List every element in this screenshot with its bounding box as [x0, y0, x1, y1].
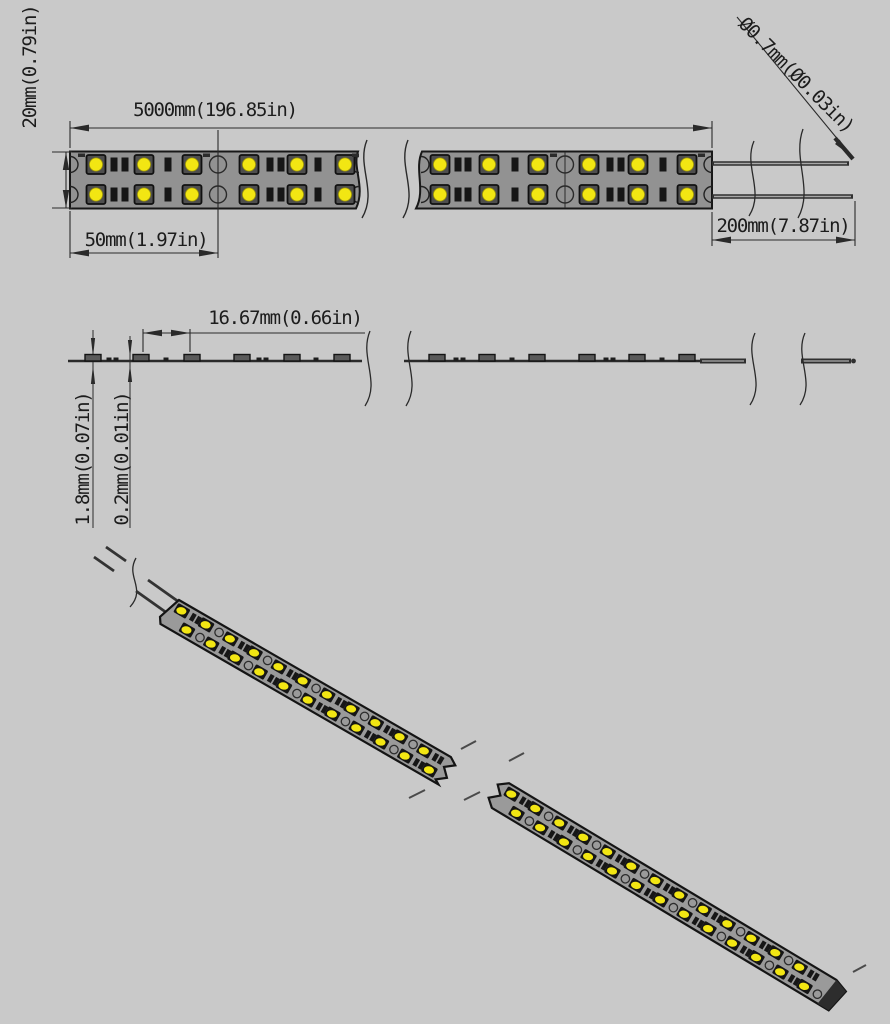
resistor [267, 158, 274, 172]
resistor [165, 188, 172, 202]
dim-strip-length-label: 5000mm(196.85in) [105, 99, 325, 121]
cut-tick [464, 792, 480, 800]
resistor [618, 188, 625, 202]
break-line [362, 140, 368, 218]
arrowhead [63, 152, 69, 170]
side-resistor-bump [314, 358, 319, 362]
cut-tick [461, 741, 476, 749]
arrowhead [91, 365, 95, 384]
resistor [607, 158, 614, 172]
led-chip [433, 188, 446, 201]
resistor [111, 188, 118, 202]
side-resistor-bump [257, 358, 262, 362]
led-chip [290, 188, 303, 201]
led-chip [137, 188, 150, 201]
side-resistor-bump [611, 358, 616, 362]
side-led-bump [479, 355, 495, 362]
resistor [660, 188, 667, 202]
arrowhead [143, 330, 162, 336]
led-chip [582, 188, 595, 201]
led-chip [242, 158, 255, 171]
led-chip [290, 158, 303, 171]
side-resistor-bump [454, 358, 459, 362]
break-line [749, 141, 755, 216]
side-led-bump [629, 355, 645, 362]
break-line [403, 140, 409, 218]
side-resistor-bump [510, 358, 515, 362]
iso-strip-segment-2 [485, 778, 848, 1013]
resistor [465, 158, 472, 172]
led-chip [137, 158, 150, 171]
side-led-bump [334, 355, 350, 362]
led-chip [338, 188, 351, 201]
side-led-bump [679, 355, 695, 362]
arrowhead [836, 237, 855, 244]
side-resistor-bump [114, 358, 119, 362]
side-resistor-bump [604, 358, 609, 362]
resistor [278, 188, 285, 202]
led-chip [482, 188, 495, 201]
side-resistor-bump [461, 358, 466, 362]
dim-led-pitch-label: 16.67mm(0.66in) [197, 307, 373, 329]
dim-cut-segment-label: 50mm(1.97in) [66, 229, 226, 251]
resistor [278, 158, 285, 172]
resistor [267, 188, 274, 202]
technical-drawing [0, 0, 890, 1024]
dim-total-thickness-label: 1.8mm(0.07in) [72, 384, 94, 534]
arrowhead [128, 340, 132, 358]
led-chip [89, 158, 102, 171]
resistor [122, 158, 129, 172]
side-resistor-bump [264, 358, 269, 362]
side-resistor-bump [660, 358, 665, 362]
break-line [365, 331, 371, 406]
resistor [512, 188, 519, 202]
resistor [315, 158, 322, 172]
cut-tick [509, 753, 524, 761]
arrowhead [693, 125, 712, 132]
break-line [130, 558, 137, 607]
side-resistor-bump [107, 358, 112, 362]
side-led-bump [284, 355, 300, 362]
drawing-canvas: 20mm(0.79in) 5000mm(196.85in) 50mm(1.97i… [0, 0, 890, 1024]
iso-wire-stub [94, 557, 114, 571]
led-chip [242, 188, 255, 201]
led-chip [531, 188, 544, 201]
dim-wire-length-label: 200mm(7.87in) [700, 215, 866, 237]
resistor [660, 158, 667, 172]
top-view-strip-right [416, 152, 712, 209]
led-chip [338, 158, 351, 171]
led-chip [185, 158, 198, 171]
dim-strip-width-label: 20mm(0.79in) [19, 2, 41, 132]
wire-tip [851, 359, 856, 364]
dim-pcb-thickness-label: 0.2mm(0.01in) [111, 384, 133, 534]
arrowhead [128, 365, 132, 383]
side-led-bump [184, 355, 200, 362]
led-chip [680, 158, 693, 171]
iso-wire [136, 591, 167, 613]
side-led-bump [529, 355, 545, 362]
side-led-bump [133, 355, 149, 362]
polarity-mark [78, 154, 85, 158]
resistor [165, 158, 172, 172]
iso-wire [148, 580, 179, 602]
cut-tick [853, 965, 866, 972]
resistor [122, 188, 129, 202]
side-led-bump [579, 355, 595, 362]
led-chip [482, 158, 495, 171]
led-chip [680, 188, 693, 201]
break-line [798, 129, 804, 218]
polarity-mark [550, 154, 557, 158]
iso-wire-stub [106, 547, 126, 561]
resistor [465, 188, 472, 202]
side-led-bump [85, 355, 101, 362]
iso-strip-segment-1 [157, 596, 458, 787]
resistor [455, 158, 462, 172]
break-line [750, 333, 756, 405]
resistor [315, 188, 322, 202]
top-view-strip-left [70, 152, 360, 209]
arrowhead [171, 330, 190, 336]
break-line [800, 333, 806, 405]
resistor [618, 158, 625, 172]
led-chip [185, 188, 198, 201]
resistor [111, 158, 118, 172]
led-chip [631, 188, 644, 201]
side-resistor-bump [164, 358, 169, 362]
resistor [607, 188, 614, 202]
led-chip [433, 158, 446, 171]
arrowhead [70, 125, 89, 132]
side-led-bump [234, 355, 250, 362]
polarity-mark [352, 154, 359, 158]
polarity-mark [203, 154, 210, 158]
arrowhead [712, 237, 731, 244]
arrowhead [63, 190, 69, 208]
resistor [512, 158, 519, 172]
cut-tick [409, 790, 425, 798]
polarity-mark [698, 154, 705, 158]
led-chip [582, 158, 595, 171]
break-line [406, 331, 412, 406]
led-chip [531, 158, 544, 171]
led-chip [89, 188, 102, 201]
led-chip [631, 158, 644, 171]
resistor [455, 188, 462, 202]
side-led-bump [429, 355, 445, 362]
